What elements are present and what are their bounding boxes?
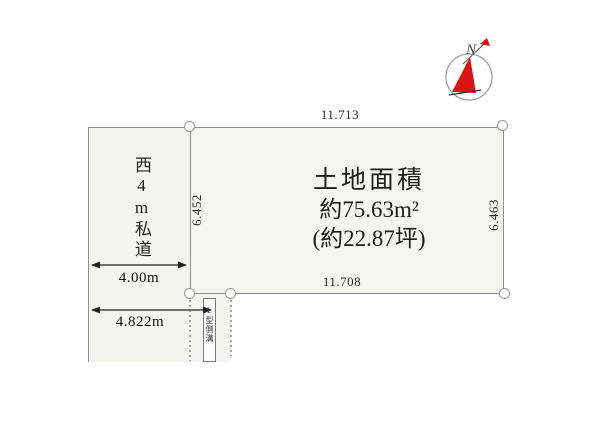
boundary-marker bbox=[225, 288, 236, 299]
boundary-marker bbox=[184, 121, 195, 132]
land-plat-diagram: N 11.713 11.708 6.452 6.463 土地面積 約75.63m… bbox=[0, 0, 600, 424]
land-area-tsubo: (約22.87坪) bbox=[243, 224, 495, 253]
boundary-marker bbox=[497, 120, 508, 131]
land-area-title: 土地面積 bbox=[243, 166, 495, 195]
land-area-sqm: 約75.63m² bbox=[243, 195, 495, 224]
dim-top: 11.713 bbox=[295, 107, 385, 123]
boundary-marker bbox=[499, 288, 510, 299]
north-label: N bbox=[465, 42, 477, 58]
north-arrow-tip bbox=[480, 38, 490, 46]
compass: N bbox=[446, 38, 492, 100]
boundary-marker bbox=[184, 288, 195, 299]
compass-needle bbox=[452, 57, 476, 93]
road-name-label: 西4m私道 bbox=[129, 156, 154, 266]
road-frontage-label: 4.822m bbox=[98, 314, 182, 331]
compass-circle bbox=[446, 54, 492, 100]
dim-bottom: 11.708 bbox=[297, 274, 387, 290]
gutter-label: L型側溝 bbox=[204, 306, 215, 362]
road-width-label: 4.00m bbox=[97, 270, 181, 287]
land-area-block: 土地面積 約75.63m² (約22.87坪) bbox=[243, 166, 495, 253]
dim-left: 6.452 bbox=[189, 180, 205, 240]
